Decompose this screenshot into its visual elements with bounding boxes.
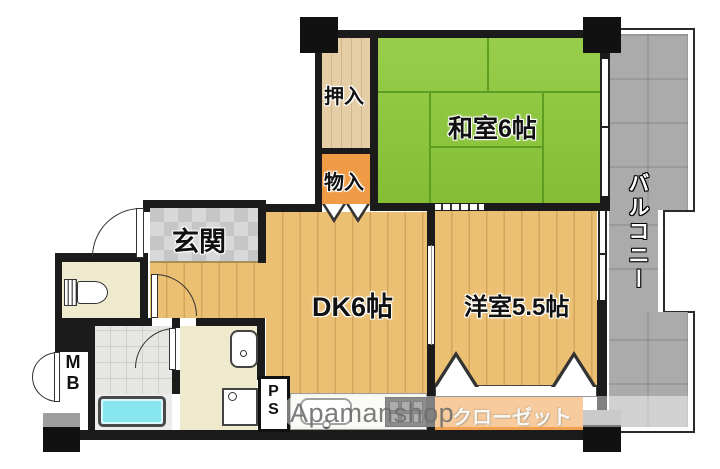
wall-washitsu-right-stub-bottom: [600, 196, 610, 211]
dk-label: DK6帖: [312, 285, 393, 324]
tatami-line: [378, 91, 600, 93]
entrance-door-arc: [92, 208, 141, 257]
hall-dk-connector: [258, 263, 266, 318]
pillar-bottom-left: [43, 427, 80, 452]
tatami-line: [429, 146, 544, 148]
washbasin: [230, 330, 258, 368]
yoshitsu-window: [598, 211, 607, 300]
toilet-bowl: [77, 281, 108, 304]
pillar-top-left: [300, 17, 338, 53]
wall-genkan-top: [143, 200, 266, 208]
wall-toilet-right: [140, 253, 148, 326]
wall-monoire-washitsu: [370, 30, 378, 211]
monoire-door-triangle-fill: [325, 204, 343, 218]
pillar-top-right: [583, 17, 621, 53]
floorplan-canvas: バルコニー: [0, 0, 720, 469]
dk-yoshitsu-sliding-door-rail: [431, 245, 433, 345]
mb-door-leaf: [54, 352, 60, 402]
wall-oshiire-monoire: [315, 148, 377, 154]
entrance-door-leaf: [136, 208, 144, 258]
washing-machine-drain: [228, 392, 237, 401]
tatami-line: [487, 38, 489, 93]
wall-outer-left: [55, 253, 62, 326]
wall-washroom-right: [257, 318, 265, 380]
washitsu-sliding-door: [432, 204, 484, 210]
bathroom-door-leaf: [169, 328, 176, 370]
genkan-label: 玄関: [172, 220, 226, 259]
wall-oshiire-left: [315, 30, 322, 207]
oshiire-label: 押入: [324, 80, 364, 109]
closet-door-triangle-fill: [437, 357, 475, 387]
mb-label: MB: [62, 352, 83, 394]
closet-door-triangle-fill: [555, 357, 593, 387]
wall-bottom: [55, 430, 607, 440]
wall-washitsu-bottom: [370, 203, 607, 211]
pillar-bottom-left-cap: [43, 413, 80, 428]
wall-top: [312, 30, 610, 38]
wall-mb-right: [88, 352, 95, 430]
washbasin-drain: [240, 350, 247, 357]
wall-dk-top: [258, 204, 322, 212]
yoshitsu-window-sash: [598, 253, 607, 255]
washitsu-window-sash: [600, 126, 610, 128]
washroom-door-leaf: [151, 274, 158, 318]
wall-genkan-left-stub: [143, 200, 150, 212]
watermark-text: Apamanshop: [290, 398, 454, 429]
pillar-bottom-right: [583, 425, 621, 452]
balcony-label: バルコニー: [622, 172, 652, 292]
washitsu-label: 和室6帖: [448, 109, 537, 145]
wall-block-left: [55, 318, 95, 352]
bathtub: [98, 396, 166, 427]
toilet-tank: [64, 279, 77, 306]
ps-label: PS: [264, 383, 282, 419]
yoshitsu-label: 洋室5.5帖: [464, 287, 569, 322]
balcony-outline-step-top: [663, 210, 695, 212]
monoire-door-triangle-fill: [349, 204, 367, 218]
monoire-label: 物入: [324, 166, 364, 195]
